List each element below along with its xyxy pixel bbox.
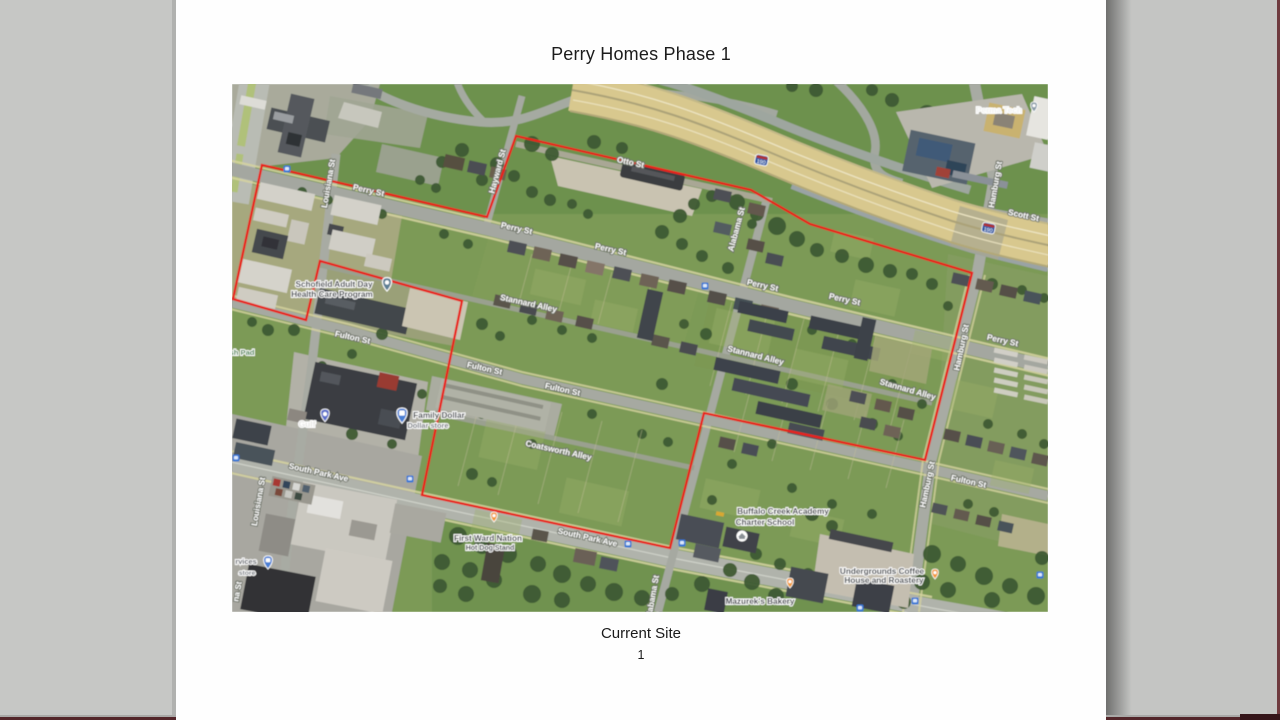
svg-text:Gulf: Gulf [299, 419, 316, 429]
svg-text:House and Roastery: House and Roastery [844, 576, 924, 585]
svg-text:Hot Dog Stand: Hot Dog Stand [466, 545, 515, 552]
svg-text:First Ward Nation: First Ward Nation [454, 534, 522, 543]
svg-text:sh Pad: sh Pad [232, 348, 255, 357]
svg-text:Buffalo Creek Academy: Buffalo Creek Academy [737, 507, 829, 516]
svg-text:Schofield Adult Day: Schofield Adult Day [295, 280, 372, 289]
svg-text:rvices: rvices [235, 557, 256, 566]
svg-text:Charter School: Charter School [736, 518, 795, 527]
svg-text:store: store [239, 570, 256, 577]
svg-text:Undergrounds Coffee: Undergrounds Coffee [840, 567, 925, 576]
svg-text:Health Care Program: Health Care Program [291, 290, 372, 299]
svg-text:Family Dollar: Family Dollar [413, 411, 465, 420]
svg-text:Mazurek's Bakery: Mazurek's Bakery [726, 597, 795, 606]
svg-text:Perma Tech: Perma Tech [976, 106, 1022, 115]
svg-text:Dollar store: Dollar store [407, 421, 448, 430]
